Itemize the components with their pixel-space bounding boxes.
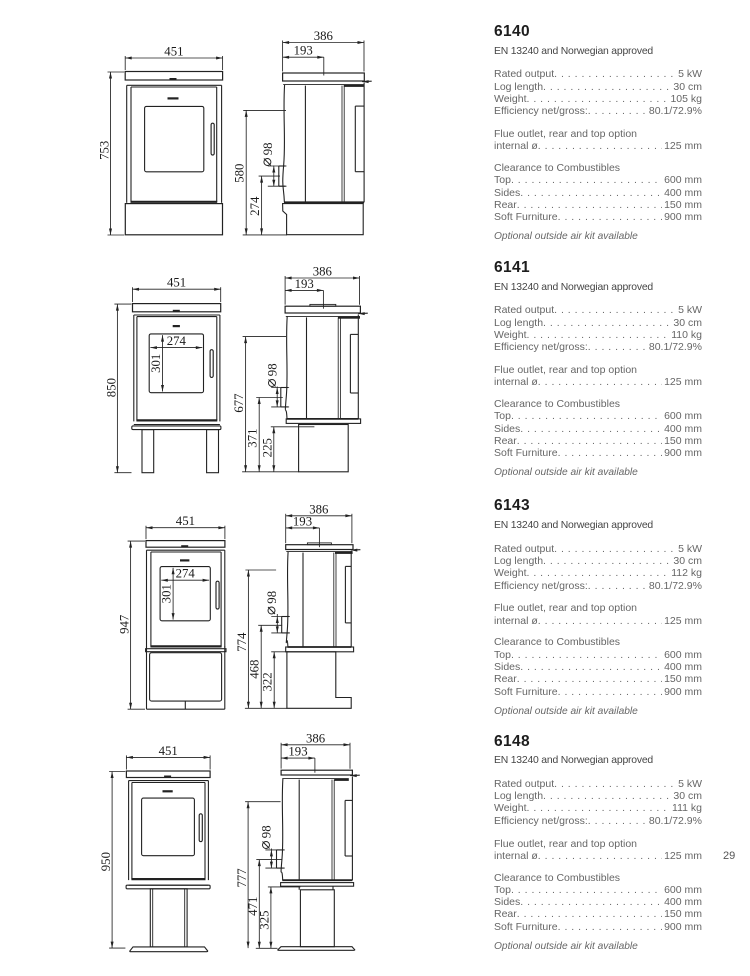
svg-text:371: 371 [246, 428, 260, 447]
svg-text:386: 386 [306, 731, 326, 745]
svg-text:580: 580 [233, 164, 247, 183]
svg-text:468: 468 [248, 660, 262, 679]
svg-text:777: 777 [235, 868, 249, 888]
svg-text:193: 193 [294, 44, 313, 58]
svg-text:193: 193 [295, 277, 314, 291]
svg-text:98: 98 [266, 363, 280, 376]
svg-text:98: 98 [261, 142, 275, 155]
svg-text:325: 325 [257, 910, 271, 929]
svg-text:193: 193 [293, 514, 312, 528]
svg-text:386: 386 [309, 502, 329, 516]
svg-text:451: 451 [164, 45, 183, 59]
svg-text:274: 274 [167, 334, 187, 348]
svg-text:193: 193 [288, 745, 307, 759]
svg-text:386: 386 [314, 29, 334, 43]
svg-text:225: 225 [260, 438, 274, 457]
svg-text:774: 774 [235, 632, 249, 652]
svg-text:274: 274 [176, 567, 196, 581]
svg-text:98: 98 [265, 591, 279, 604]
svg-text:451: 451 [176, 514, 195, 528]
svg-text:451: 451 [167, 276, 186, 290]
svg-text:322: 322 [261, 672, 275, 691]
svg-text:950: 950 [99, 852, 113, 871]
svg-text:677: 677 [232, 393, 246, 413]
svg-text:301: 301 [160, 584, 174, 603]
svg-text:947: 947 [118, 614, 132, 634]
svg-text:386: 386 [313, 265, 333, 279]
svg-text:753: 753 [98, 141, 112, 160]
svg-text:451: 451 [159, 744, 178, 758]
svg-text:850: 850 [104, 378, 118, 397]
svg-text:98: 98 [260, 825, 274, 838]
svg-text:274: 274 [248, 196, 262, 216]
svg-text:301: 301 [149, 354, 163, 373]
